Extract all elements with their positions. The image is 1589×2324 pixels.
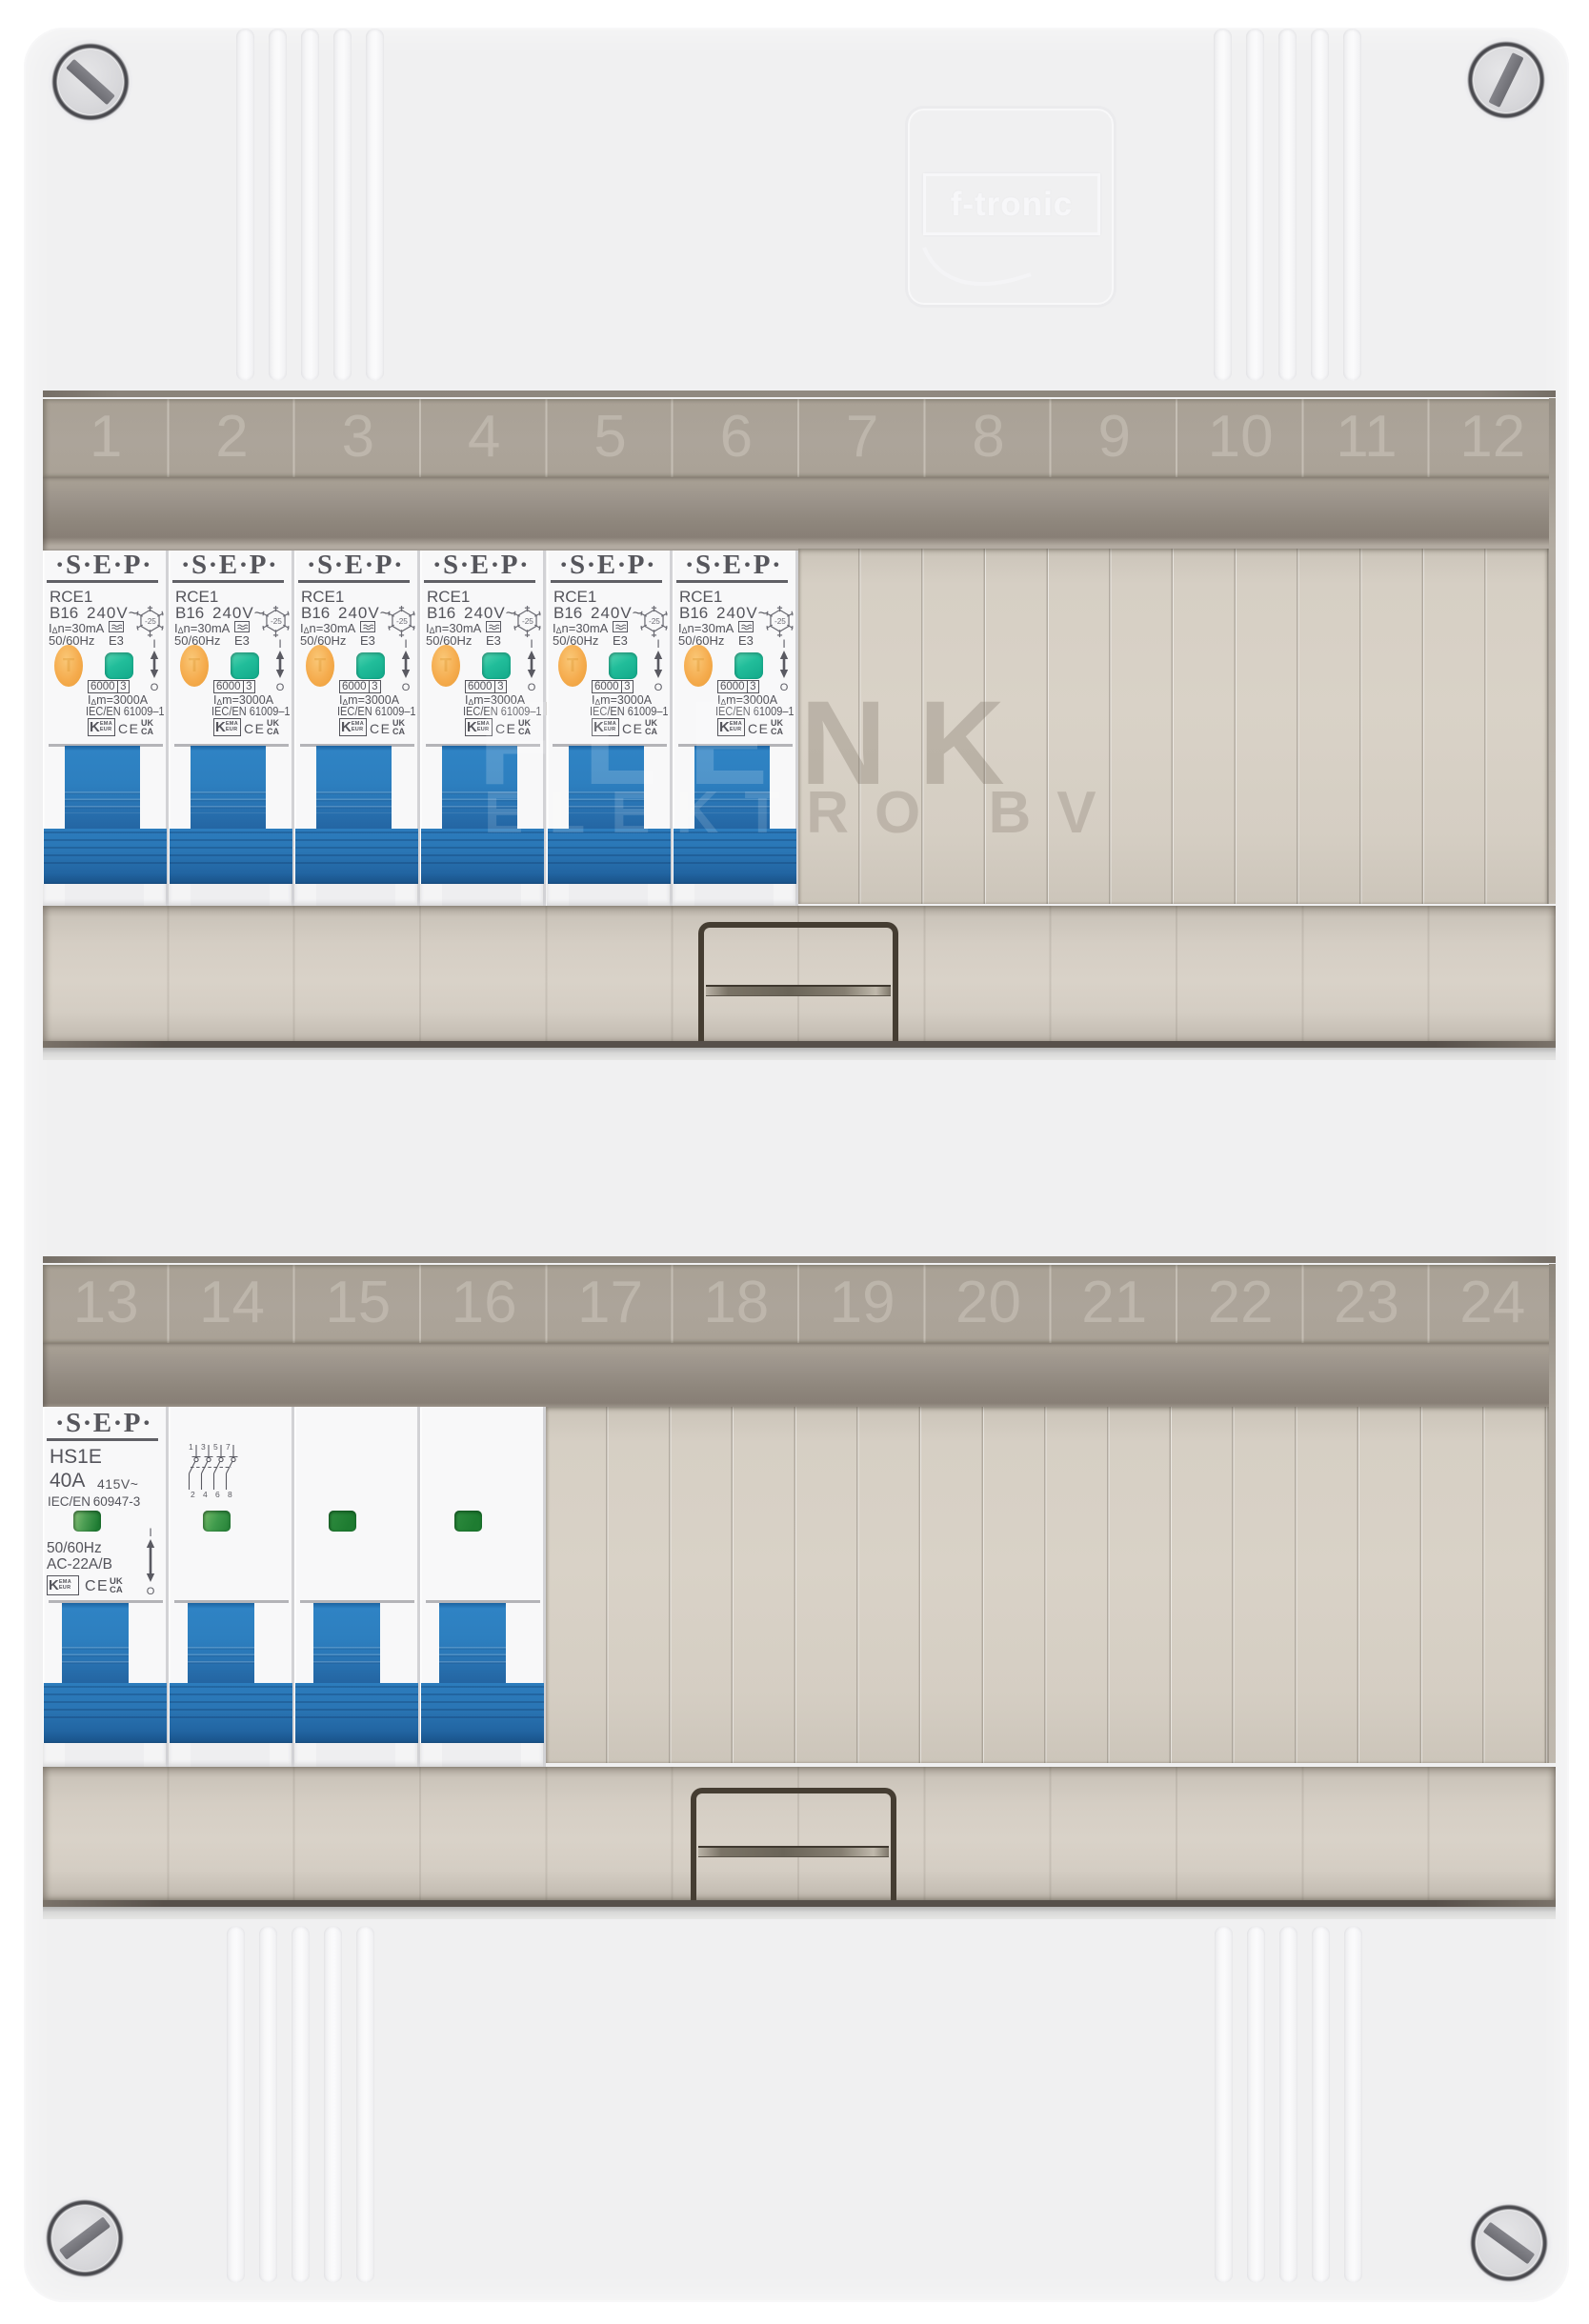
svg-text:-25: -25 bbox=[774, 617, 786, 626]
svg-text:-25: -25 bbox=[145, 617, 156, 626]
svg-text:-25: -25 bbox=[522, 617, 533, 626]
svg-text:-25: -25 bbox=[271, 617, 282, 626]
svg-text:I: I bbox=[530, 638, 533, 651]
svg-text:O: O bbox=[276, 682, 285, 691]
svg-text:I: I bbox=[278, 638, 281, 651]
svg-text:O: O bbox=[402, 682, 411, 691]
svg-text:3: 3 bbox=[201, 1442, 206, 1452]
svg-text:5: 5 bbox=[213, 1442, 218, 1452]
svg-text:7: 7 bbox=[226, 1442, 231, 1452]
svg-text:4: 4 bbox=[203, 1490, 208, 1499]
svg-text:6: 6 bbox=[215, 1490, 220, 1499]
svg-text:I: I bbox=[656, 638, 659, 651]
svg-text:O: O bbox=[151, 682, 159, 691]
svg-text:I: I bbox=[782, 638, 785, 651]
svg-text:O: O bbox=[147, 1586, 155, 1595]
svg-text:-25: -25 bbox=[396, 617, 408, 626]
svg-text:2: 2 bbox=[191, 1490, 195, 1499]
svg-text:8: 8 bbox=[228, 1490, 232, 1499]
svg-text:I: I bbox=[149, 1527, 151, 1539]
svg-text:I: I bbox=[404, 638, 407, 651]
svg-text:-25: -25 bbox=[649, 617, 660, 626]
svg-text:1: 1 bbox=[189, 1442, 193, 1452]
svg-text:I: I bbox=[152, 638, 155, 651]
